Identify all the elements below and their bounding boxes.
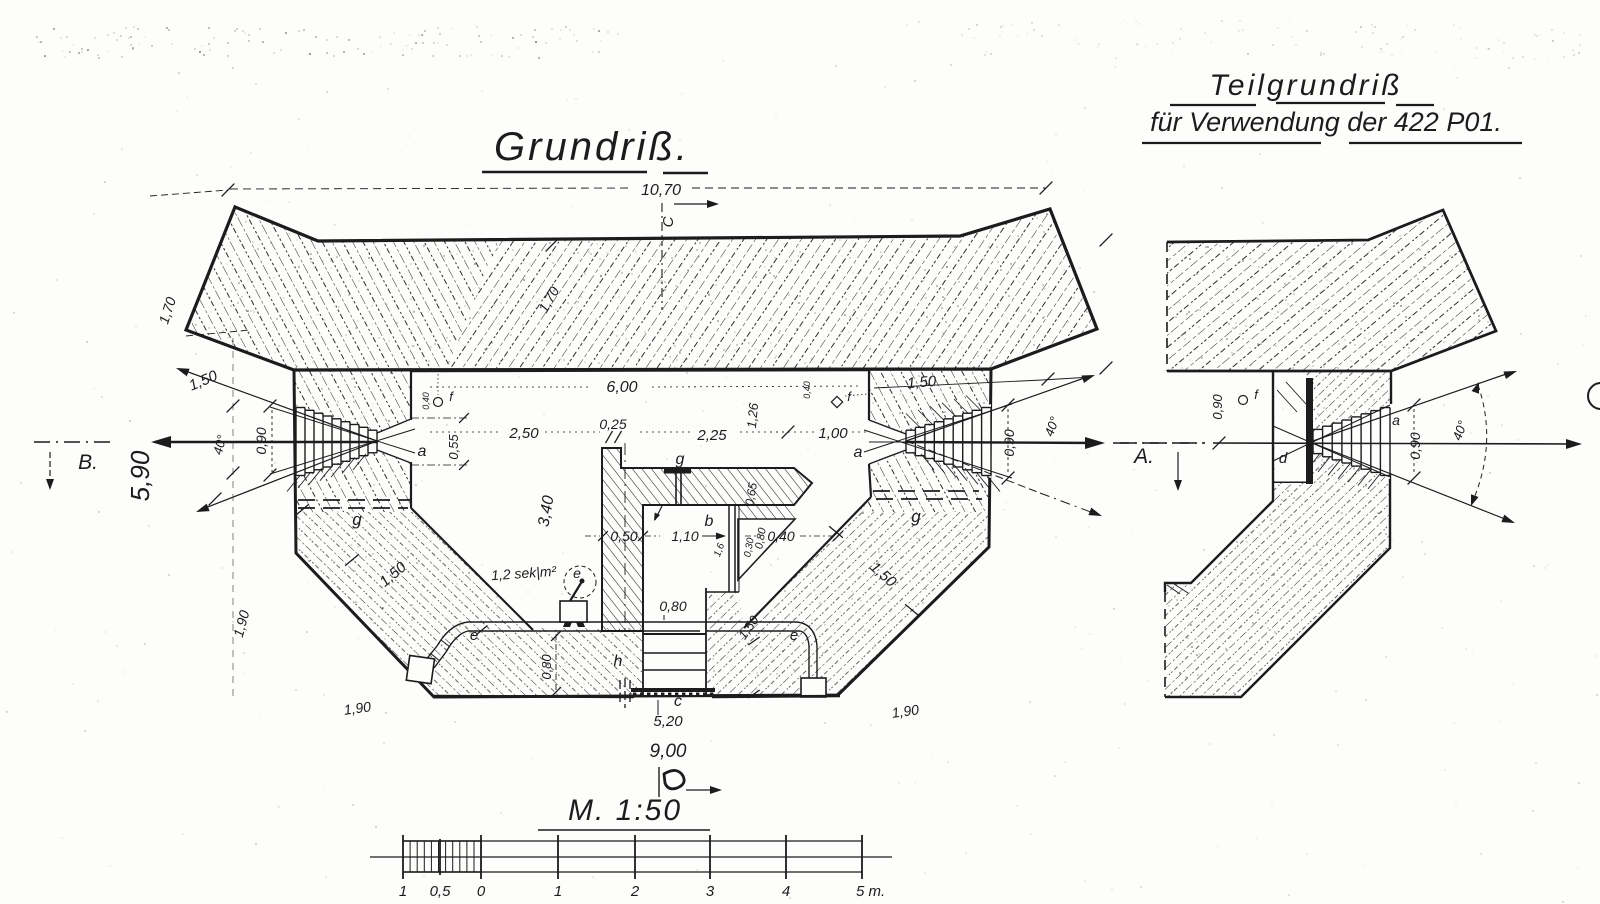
svg-text:c: c — [674, 693, 682, 710]
svg-text:5,20: 5,20 — [653, 713, 683, 730]
svg-text:0,90: 0,90 — [1407, 432, 1423, 459]
svg-text:4: 4 — [782, 883, 790, 900]
svg-text:0,40: 0,40 — [421, 392, 431, 410]
svg-text:6,00: 6,00 — [606, 379, 637, 396]
svg-text:b: b — [705, 513, 714, 530]
svg-text:Grundriß.: Grundriß. — [494, 125, 690, 169]
svg-text:0: 0 — [477, 883, 486, 900]
svg-text:0,50: 0,50 — [610, 528, 637, 544]
svg-text:1,00: 1,00 — [818, 425, 848, 442]
svg-text:e: e — [790, 627, 798, 644]
svg-text:5 m.: 5 m. — [856, 883, 885, 900]
svg-text:2,25: 2,25 — [696, 427, 727, 444]
svg-text:0,55: 0,55 — [446, 434, 461, 460]
svg-text:a: a — [1392, 412, 1400, 428]
svg-text:A.: A. — [1132, 445, 1154, 468]
svg-text:1: 1 — [554, 883, 562, 900]
svg-text:a: a — [854, 444, 863, 461]
svg-text:a: a — [418, 443, 427, 460]
svg-text:0,40: 0,40 — [802, 381, 812, 399]
svg-text:d: d — [1279, 450, 1288, 467]
svg-text:0,5: 0,5 — [430, 883, 452, 900]
svg-text:2,50: 2,50 — [508, 425, 539, 442]
svg-text:2: 2 — [630, 883, 640, 900]
svg-text:0,40: 0,40 — [767, 528, 794, 544]
svg-text:1: 1 — [399, 883, 407, 900]
svg-text:0,80: 0,80 — [659, 598, 686, 614]
svg-text:1,10: 1,10 — [671, 528, 698, 544]
svg-text:g: g — [911, 507, 921, 526]
svg-text:1,50: 1,50 — [906, 373, 937, 393]
svg-text:3: 3 — [706, 883, 715, 900]
svg-text:0,80: 0,80 — [539, 654, 554, 680]
svg-text:5,90: 5,90 — [125, 450, 155, 501]
svg-text:C: C — [660, 216, 677, 227]
svg-text:M. 1:50: M. 1:50 — [568, 794, 682, 827]
svg-text:B.: B. — [78, 451, 98, 474]
svg-text:h: h — [614, 653, 623, 670]
svg-text:g: g — [352, 510, 362, 529]
svg-text:0,90: 0,90 — [1001, 429, 1017, 456]
svg-text:1,26: 1,26 — [744, 402, 761, 429]
svg-text:e: e — [470, 627, 478, 644]
svg-text:0,90: 0,90 — [1210, 394, 1225, 420]
svg-text:Teilgrundriß: Teilgrundriß — [1209, 69, 1402, 102]
svg-text:g: g — [676, 451, 685, 468]
svg-text:0,90: 0,90 — [253, 427, 269, 454]
svg-text:für Verwendung der 422 P01.: für Verwendung der 422 P01. — [1150, 107, 1502, 137]
svg-text:9,00: 9,00 — [650, 741, 687, 762]
svg-text:e: e — [573, 565, 581, 581]
svg-text:10,70: 10,70 — [641, 182, 681, 199]
svg-text:0,25: 0,25 — [599, 416, 626, 432]
